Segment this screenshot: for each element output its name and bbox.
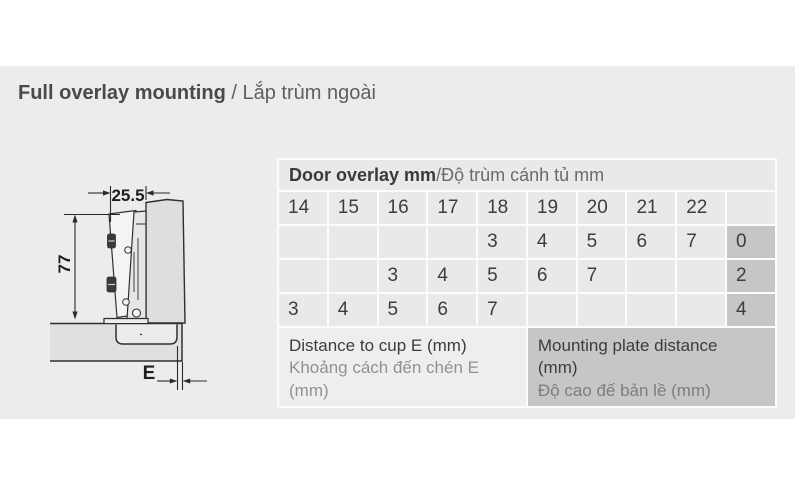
overlay-value: 17 — [428, 192, 476, 224]
table-header-english: Door overlay mm — [289, 165, 436, 186]
legend-mounting-plate-distance: Mounting plate distance (mm) Độ cao đế b… — [528, 328, 775, 406]
overlay-value: 20 — [578, 192, 626, 224]
table-header: Door overlay mm / Độ trùm cánh tủ mm — [279, 160, 775, 190]
cup-distance-cell: 7 — [677, 226, 725, 258]
hinge-pivot — [133, 309, 141, 317]
cup-distance-cell — [329, 260, 377, 292]
overlay-value: 22 — [677, 192, 725, 224]
overlay-value-empty — [727, 192, 775, 224]
overlay-value: 18 — [478, 192, 526, 224]
cup-distance-cell — [528, 294, 576, 326]
legend-distance-to-cup-english: Distance to cup E (mm) — [289, 335, 467, 357]
page-title-separator: / — [226, 82, 243, 104]
hinge-mounting-diagram: 25.5 77 E — [38, 168, 230, 400]
dim-cup-distance-label: E — [143, 363, 156, 384]
cup-distance-cell: 4 — [428, 260, 476, 292]
cup-distance-cell: 4 — [528, 226, 576, 258]
cup-distance-cell — [279, 226, 327, 258]
cup-distance-cell — [677, 260, 725, 292]
cup-distance-cell: 6 — [627, 226, 675, 258]
cup-distance-cell — [627, 260, 675, 292]
dim-height-label: 77 — [55, 255, 74, 274]
cabinet-panel — [146, 200, 185, 324]
cup-distance-cell — [428, 226, 476, 258]
cup-flange — [104, 319, 148, 324]
hinge-cup — [116, 325, 177, 345]
page-title-english: Full overlay mounting — [18, 82, 226, 104]
legend-distance-to-cup: Distance to cup E (mm) Khoảng cách đến c… — [279, 328, 526, 406]
legend-mounting-plate-vietnamese: Độ cao đế bản lề (mm) — [538, 380, 711, 402]
overlay-value: 16 — [379, 192, 427, 224]
cup-distance-cell: 3 — [279, 294, 327, 326]
page-title: Full overlay mounting / Lắp trùm ngoài — [18, 82, 376, 105]
plate-distance-cell: 4 — [727, 294, 775, 326]
cup-distance-cell: 5 — [478, 260, 526, 292]
dim-top-width-label: 25.5 — [111, 186, 144, 205]
cup-distance-cell: 6 — [528, 260, 576, 292]
cup-distance-cell: 7 — [478, 294, 526, 326]
legend-mounting-plate-english: Mounting plate distance (mm) — [538, 335, 748, 380]
cup-distance-cell: 4 — [329, 294, 377, 326]
cup-distance-cell: 3 — [379, 260, 427, 292]
overlay-value: 21 — [627, 192, 675, 224]
screw-hole — [125, 247, 132, 254]
overlay-value: 19 — [528, 192, 576, 224]
overlay-value: 14 — [279, 192, 327, 224]
cup-distance-cell: 6 — [428, 294, 476, 326]
cup-distance-cell — [677, 294, 725, 326]
plate-distance-cell: 0 — [727, 226, 775, 258]
cup-distance-cell — [578, 294, 626, 326]
door-overlay-table: Door overlay mm / Độ trùm cánh tủ mm 14 … — [277, 158, 777, 408]
cup-distance-cell: 3 — [478, 226, 526, 258]
cup-distance-cell: 5 — [379, 294, 427, 326]
cup-distance-cell — [329, 226, 377, 258]
plate-distance-cell: 2 — [727, 260, 775, 292]
cup-distance-cell: 5 — [578, 226, 626, 258]
page-title-vietnamese: Lắp trùm ngoài — [242, 82, 375, 104]
table-header-vietnamese: Độ trùm cánh tủ mm — [441, 165, 604, 186]
cup-distance-cell — [279, 260, 327, 292]
overlay-value: 15 — [329, 192, 377, 224]
legend-distance-to-cup-vietnamese: Khoảng cách đến chén E (mm) — [289, 357, 489, 402]
cup-distance-cell: 7 — [578, 260, 626, 292]
cup-distance-cell — [379, 226, 427, 258]
cup-distance-cell — [627, 294, 675, 326]
screw-hole — [123, 299, 130, 306]
